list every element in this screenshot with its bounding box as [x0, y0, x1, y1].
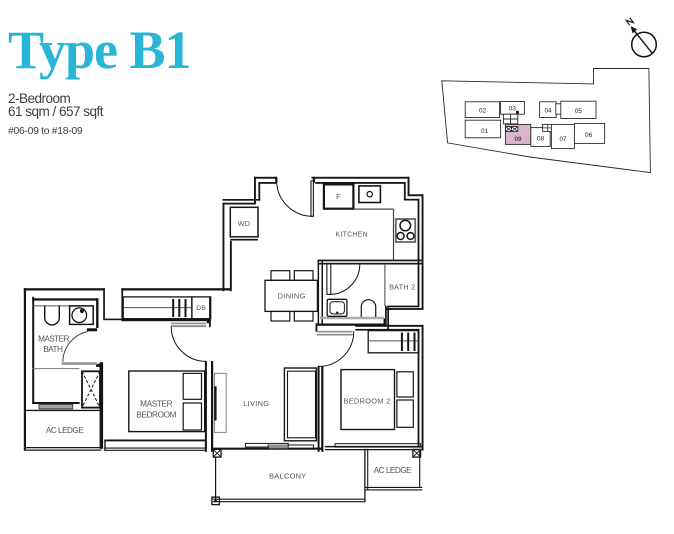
svg-text:BATH 2: BATH 2 — [389, 282, 415, 291]
svg-text:01: 01 — [481, 128, 489, 135]
svg-text:BALCONY: BALCONY — [269, 472, 306, 481]
svg-text:LIVING: LIVING — [243, 399, 269, 408]
svg-text:04: 04 — [544, 108, 552, 115]
svg-text:MASTER: MASTER — [140, 400, 172, 409]
svg-text:KITCHEN: KITCHEN — [336, 231, 368, 238]
svg-text:07: 07 — [559, 136, 567, 143]
svg-text:BEDROOM: BEDROOM — [136, 411, 176, 420]
svg-text:F: F — [336, 192, 341, 201]
svg-text:MASTER: MASTER — [38, 334, 69, 343]
svg-text:BEDROOM 2: BEDROOM 2 — [343, 397, 390, 406]
svg-text:09: 09 — [514, 136, 522, 143]
svg-text:02: 02 — [479, 108, 487, 115]
svg-text:08: 08 — [537, 135, 545, 142]
svg-text:BATH: BATH — [43, 345, 63, 354]
svg-text:AC LEDGE: AC LEDGE — [46, 426, 84, 435]
svg-text:06: 06 — [585, 132, 593, 139]
svg-text:WD: WD — [238, 219, 251, 228]
svg-text:DB: DB — [196, 305, 206, 312]
svg-text:AC LEDGE: AC LEDGE — [374, 466, 412, 475]
svg-text:05: 05 — [575, 108, 583, 115]
svg-text:03: 03 — [509, 106, 517, 113]
svg-text:DINING: DINING — [278, 292, 306, 301]
